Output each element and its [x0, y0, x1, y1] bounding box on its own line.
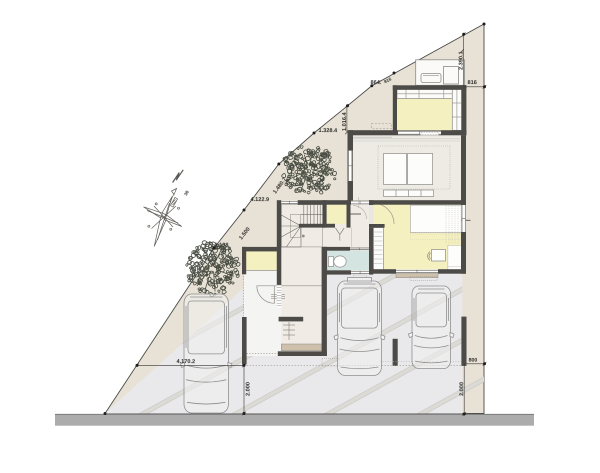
svg-text:2.390.1: 2.390.1 [459, 51, 465, 70]
svg-text:4.170.2: 4.170.2 [176, 359, 195, 365]
svg-text:1.138: 1.138 [214, 243, 228, 249]
svg-text:864.: 864. [370, 80, 381, 86]
svg-text:816: 816 [467, 80, 476, 86]
svg-text:800: 800 [469, 358, 478, 364]
svg-text:1.328.4: 1.328.4 [318, 128, 338, 134]
svg-text:2.000: 2.000 [459, 382, 465, 396]
svg-text:4.122.9: 4.122.9 [250, 197, 269, 203]
svg-text:1.016.4: 1.016.4 [342, 111, 348, 131]
svg-text:2.000: 2.000 [246, 382, 252, 396]
